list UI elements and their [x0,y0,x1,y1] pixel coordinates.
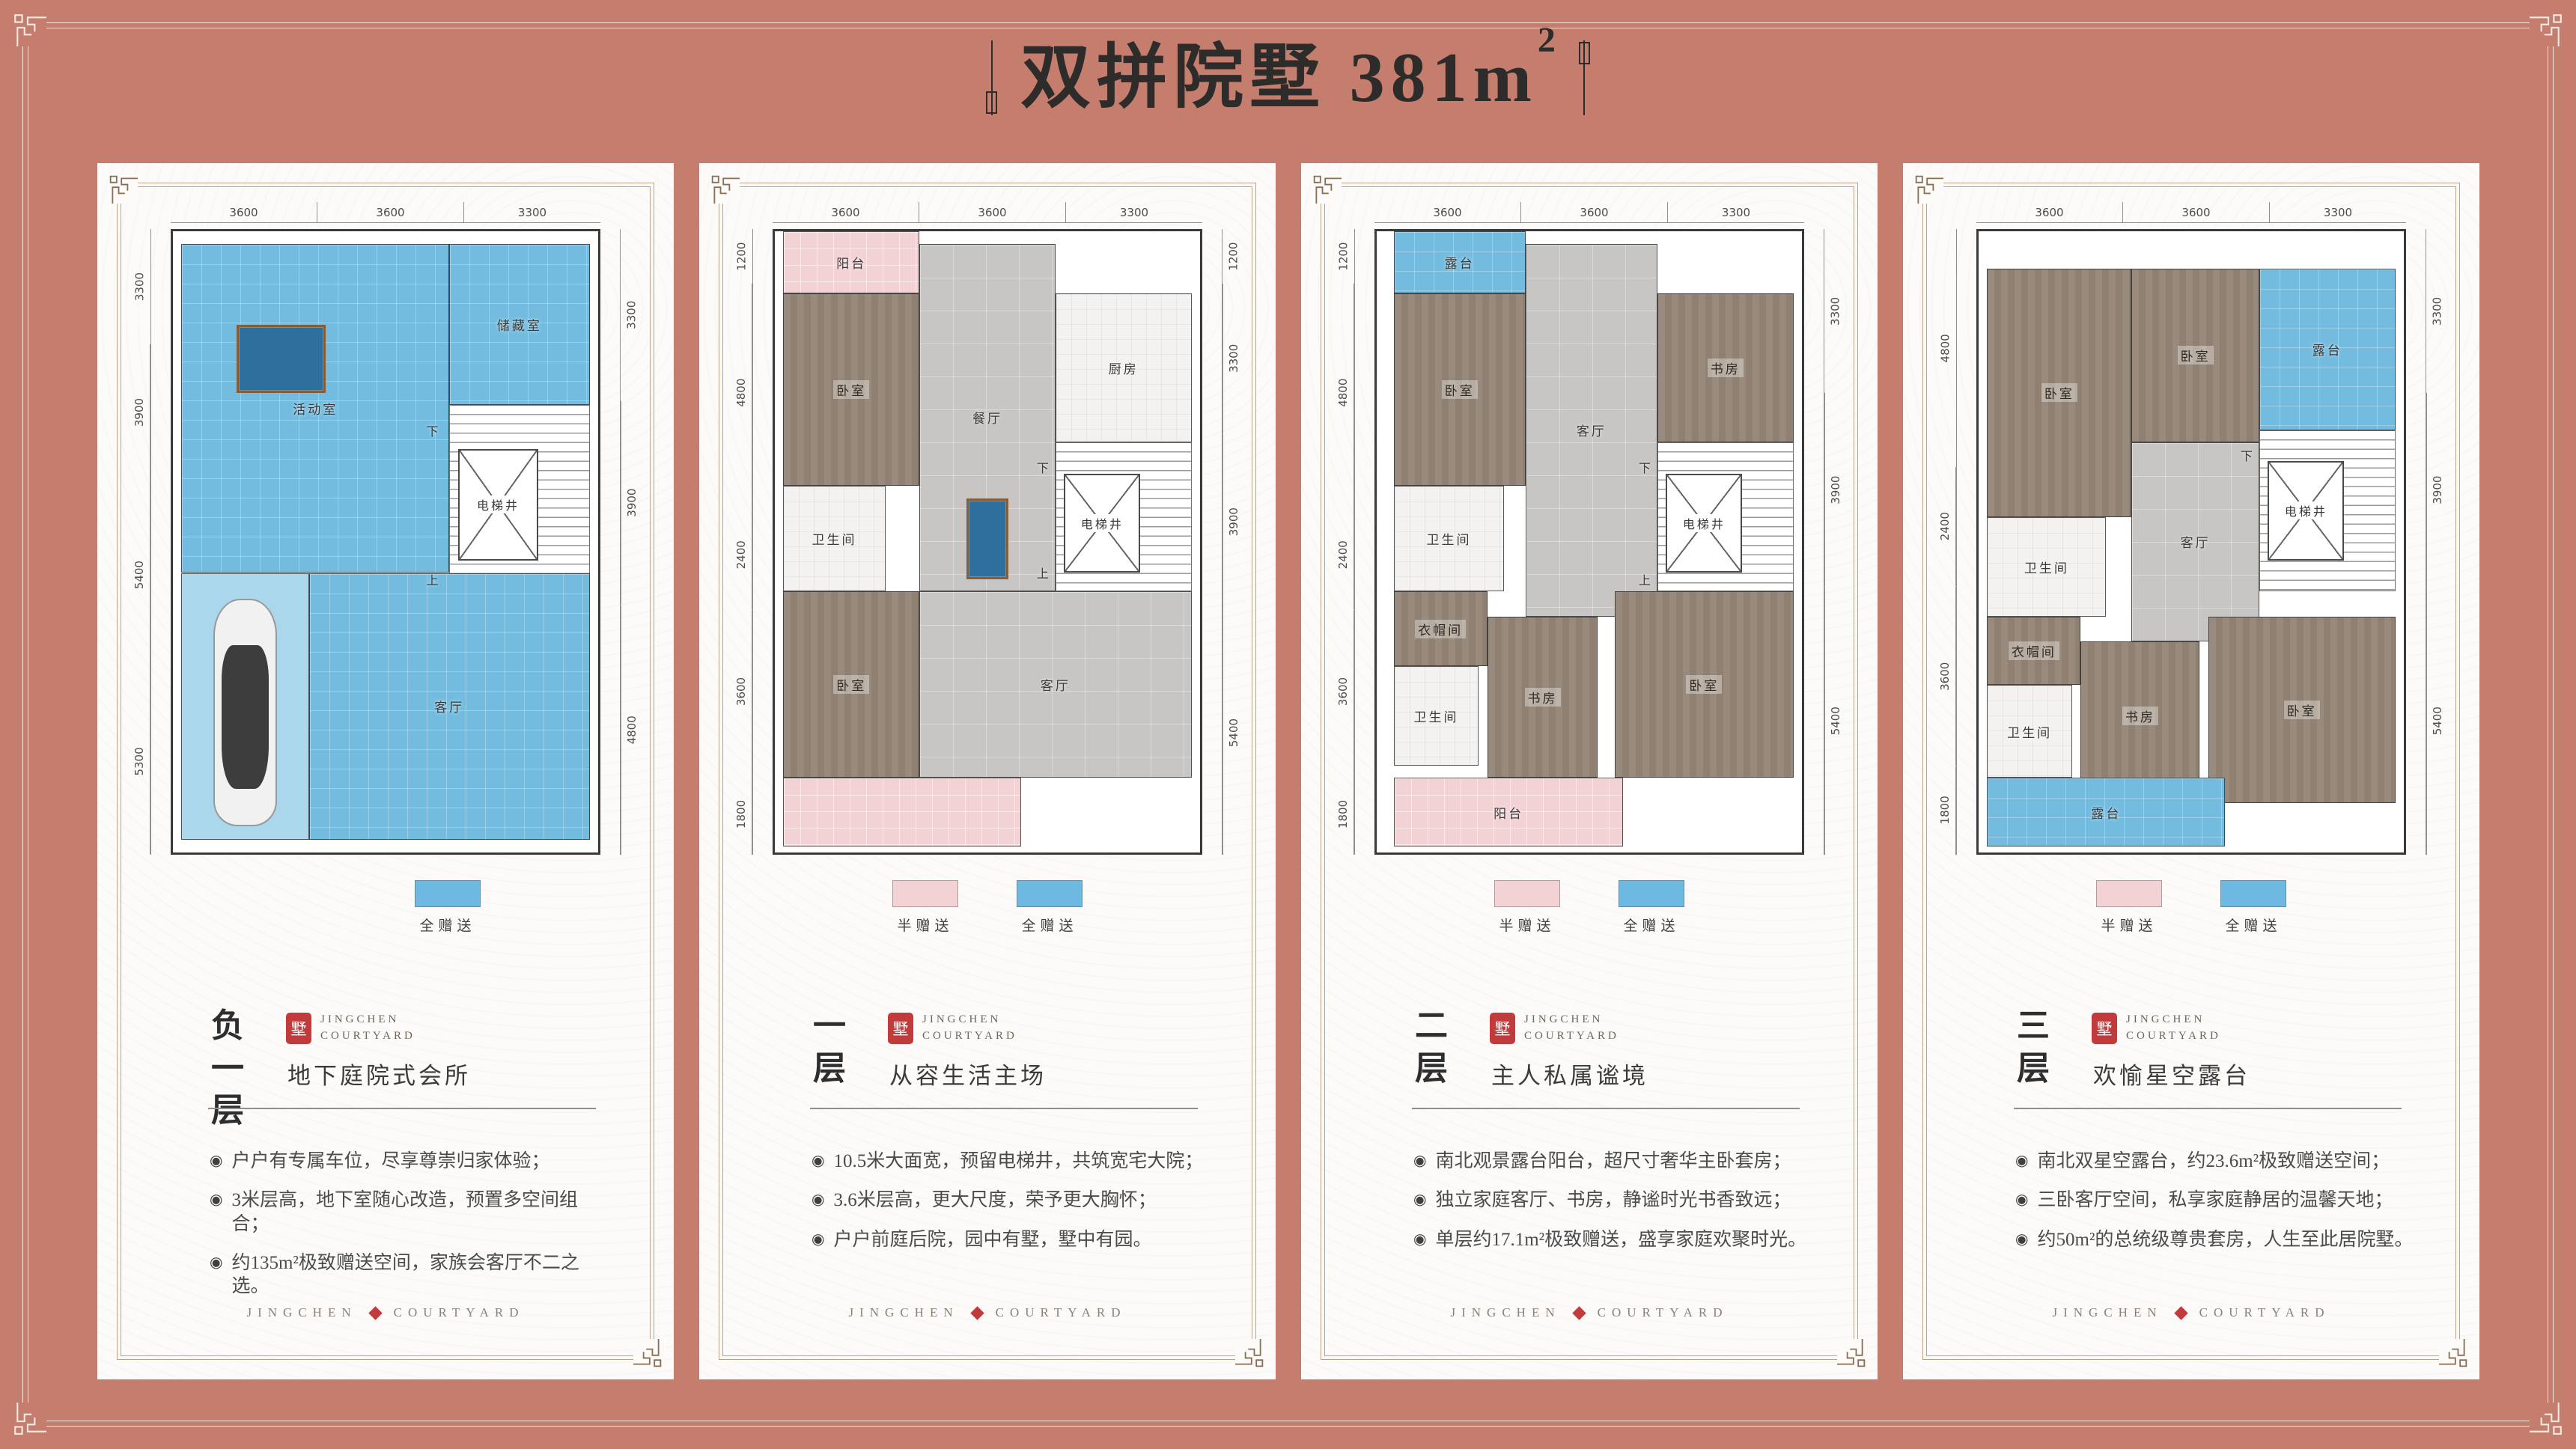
diamond-icon [368,1306,382,1320]
title-ornament-right [1578,40,1590,115]
room-white: 卫生间 [1394,666,1479,766]
panel-subtitle: 从容生活主场 [889,1057,1047,1090]
bullet-item: ◉3米层高，地下室随心改造，预置多空间组合； [210,1189,614,1236]
room-label: 衣帽间 [1415,620,1466,638]
room-pink: 阳台 [783,231,919,293]
brand-names: JINGCHEN COURTYARD [2126,1012,2221,1045]
dims-right: 1200330039005400 [1222,229,1244,855]
room-label: 上 [1639,570,1651,588]
panel-subtitle: 地下庭院式会所 [287,1057,471,1090]
plan-annotation: 下 [415,412,449,449]
floor-name-char: 层 [2017,1050,2050,1088]
room-elevator: 电梯井 [2268,461,2344,561]
legend-label: 全赠送 [413,915,482,935]
room-wood: 卧室 [1987,269,2131,517]
room-label: 活动室 [293,399,338,418]
dim-label: 3300 [129,229,150,344]
bullet-item: ◉三卧客厅空间，私享家庭静居的温馨天地； [2015,1189,2420,1212]
dim-label: 3600 [171,202,317,222]
room-white: 卫生间 [783,486,885,591]
brand-name-2: COURTYARD [2126,1028,2221,1045]
bullet-item: ◉单层约17.1m²极致赠送，盛享家庭欢聚时光。 [1413,1228,1818,1251]
room-elevator: 电梯井 [458,449,539,561]
diamond-icon [970,1306,984,1320]
room-label: 客厅 [1577,421,1607,439]
room-label: 卧室 [2041,383,2077,402]
dim-label: 5400 [129,481,150,669]
brand-seal-icon: 墅 [1490,1013,1515,1044]
plan-box: 露台卧室客厅书房电梯井卫生间衣帽间卫生间书房卧室阳台下上 [1374,229,1804,855]
legend-swatch-full [2220,880,2286,907]
room-gray: 客厅 [919,591,1192,778]
divider-rule [2014,1108,2402,1109]
car-icon [213,599,277,826]
dim-label: 3900 [621,401,642,605]
plan-box: 活动室储藏室电梯井客厅下上 [171,229,600,855]
poster: 双拼院墅 381m2 360036003300 3300390054005300… [0,0,2576,1449]
floor-name: 负一层 [211,1007,244,1130]
room-wood: 卧室 [2131,269,2259,442]
dim-label: 2400 [731,501,752,609]
dims-right: 330039004800 [620,229,642,855]
plan-annotation: 上 [415,561,449,598]
room-blue: 客厅 [309,573,590,841]
room-blue: 露台 [1394,231,1526,293]
plan-annotation: 下 [2229,436,2263,474]
room-label: 卫生间 [812,529,857,548]
room-label: 卧室 [1442,380,1478,399]
brand-name-2: COURTYARD [320,1028,415,1045]
dim-label: 3600 [1374,202,1520,222]
dim-label: 4800 [1934,229,1956,467]
dim-label: 4800 [1333,284,1354,501]
bullet-item: ◉南北双星空露台，约23.6m²极致赠送空间； [2015,1150,2420,1173]
dim-label: 1200 [1222,229,1244,284]
room-elevator: 电梯井 [1064,474,1140,573]
legend-swatch-half [2096,880,2162,907]
divider-rule [810,1108,1198,1109]
dim-label: 3300 [621,229,642,401]
panel-footer: JINGCHEN COURTYARD [97,1305,674,1320]
room-wood: 卧室 [2208,617,2396,803]
room-wood: 书房 [1488,617,1598,778]
dims-right: 330039005400 [1824,229,1846,855]
room-label: 卧室 [1686,675,1722,694]
dim-label: 3900 [129,344,150,481]
room-wood: 衣帽间 [1394,591,1488,666]
floor-name-char: 负 [211,1007,244,1046]
dim-label: 1800 [1934,766,1956,855]
fret-corner-icon [2530,1403,2564,1437]
car-roof [222,645,269,789]
dims-left: 12004800240036001800 [731,229,753,855]
dim-label: 3900 [1824,393,1846,587]
legend-label: 半赠送 [1493,915,1562,935]
dims-top: 360036003300 [171,202,600,223]
floor-title-block: 一层 墅 JINGCHEN COURTYARD 从容生活主场 [810,1007,1198,1131]
fret-corner-icon [710,174,740,204]
dim-label: 3900 [2426,393,2448,587]
divider-rule [1412,1108,1800,1109]
floor-title-block: 三层 墅 JINGCHEN COURTYARD 欢愉星空露台 [2014,1007,2402,1131]
floor-title-block: 负一层 墅 JINGCHEN COURTYARD 地下庭院式会所 [208,1007,596,1131]
dim-label: 3600 [2122,202,2269,222]
dim-label: 1800 [1333,773,1354,855]
floor-name: 二层 [1415,1007,1448,1087]
dim-label: 3300 [2269,202,2406,222]
plan-box: 阳台卧室餐厅厨房电梯井卫生间卧室客厅下上 [773,229,1202,855]
room-label: 书房 [1708,359,1744,377]
dims-top: 360036003300 [1976,202,2406,223]
title-ornament-left [986,40,998,115]
floor-name: 三层 [2017,1007,2050,1087]
floor-title-block: 二层 墅 JINGCHEN COURTYARD 主人私属谧境 [1412,1007,1800,1131]
fret-corner-icon [1837,1339,1867,1369]
floor-plan: 360036003300 3300390054005300 3300390048… [127,202,644,859]
brand-logo: 墅 JINGCHEN COURTYARD [888,1012,1017,1045]
legend-item-half: 半赠送 [1493,880,1562,935]
plan-annotation: 下 [1627,449,1661,486]
footer-right: COURTYARD [394,1305,525,1320]
dim-label: 5400 [2426,587,2448,855]
brand-seal-icon: 墅 [2092,1013,2117,1044]
floor-name-char: 层 [813,1050,846,1088]
room-label: 下 [2241,446,2253,464]
dims-top: 360036003300 [773,202,1202,223]
diamond-icon [1572,1306,1586,1320]
plan-box: 卧室卧室露台客厅电梯井卫生间衣帽间卫生间书房卧室露台下 [1976,229,2406,855]
dim-label: 3300 [1065,202,1202,222]
dim-label: 3600 [731,610,752,773]
floor-name-char: 三 [2017,1007,2050,1046]
room-wood: 卧室 [783,293,919,486]
panel-subtitle: 主人私属谧境 [1491,1057,1648,1090]
dim-label: 4800 [621,605,642,855]
dim-label: 3600 [773,202,919,222]
dim-label: 1200 [1333,229,1354,284]
dim-label: 3300 [2426,229,2448,393]
dim-label: 5400 [1824,587,1846,855]
room-wood: 衣帽间 [1987,617,2080,685]
room-pink: 阳台 [1394,778,1624,846]
room-label: 电梯井 [2283,501,2330,519]
bullet-item: ◉南北观景露台阳台，超尺寸奢华主卧套房； [1413,1150,1818,1173]
floor-plan: 360036003300 4800240036001800 3300390054… [1933,202,2449,859]
room-white: 卫生间 [1987,517,2106,617]
bullet-list: ◉南北观景露台阳台，超尺寸奢华主卧套房；◉独立家庭客厅、书房，静谧时光书香致远；… [1413,1150,1818,1267]
legend-swatch-half [1494,880,1560,907]
floor-plan: 360036003300 12004800240036001800 120033… [729,202,1246,859]
room-label: 下 [1639,458,1651,476]
brand-seal-icon: 墅 [888,1013,913,1044]
room-label: 卫生间 [1427,529,1472,548]
room-pool [966,498,1009,579]
room-label: 露台 [2312,340,2342,359]
room-pink [783,778,1021,846]
footer-right: COURTYARD [2199,1305,2330,1320]
bullet-item: ◉10.5米大面宽，预留电梯井，共筑宽宅大院； [812,1150,1216,1173]
room-blue: 活动室 [181,244,449,573]
room-label: 客厅 [434,697,464,716]
fret-corner-icon [1235,1339,1265,1369]
legend-item-full: 全赠送 [413,880,482,935]
legend-swatch-full [415,880,481,907]
room-label: 阳台 [1493,803,1523,822]
room-car [198,591,292,834]
fret-corner-icon [12,1403,46,1437]
room-pool [237,325,326,393]
footer-right: COURTYARD [1598,1305,1729,1320]
legend: 半赠送全赠送 [1301,880,1878,935]
legend: 全赠送 [97,880,674,935]
panel-card: 360036003300 4800240036001800 3300390054… [1903,163,2479,1379]
floor-name-char: 一 [211,1050,244,1088]
brand-name-1: JINGCHEN [320,1012,415,1028]
brand-names: JINGCHEN COURTYARD [922,1012,1017,1045]
room-label: 露台 [2091,803,2121,822]
brand-name-1: JINGCHEN [922,1012,1017,1028]
room-label: 客厅 [1041,675,1071,694]
footer-left: JINGCHEN [1451,1305,1561,1320]
room-wood: 卧室 [1394,293,1526,486]
brand-logo: 墅 JINGCHEN COURTYARD [2092,1012,2221,1045]
room-label: 卧室 [833,675,869,694]
floor-name-char: 二 [1415,1007,1448,1046]
dims-left: 12004800240036001800 [1333,229,1355,855]
plan-annotation: 下 [1026,449,1059,486]
room-label: 卫生间 [2007,722,2052,741]
room-label: 电梯井 [1079,514,1126,532]
brand-seal-icon: 墅 [286,1013,311,1044]
room-label: 书房 [2122,707,2158,725]
brand-logo: 墅 JINGCHEN COURTYARD [286,1012,415,1045]
room-white: 厨房 [1056,293,1192,442]
brand-name-1: JINGCHEN [1524,1012,1619,1028]
bullet-item: ◉约50m²的总统级尊贵套房，人生至此居院墅。 [2015,1228,2420,1251]
room-label: 电梯井 [475,495,522,513]
dim-label: 2400 [1934,467,1956,586]
room-label: 卧室 [2284,701,2320,719]
room-label: 电梯井 [1681,514,1728,532]
poster-title: 双拼院墅 381m2 [1020,43,1556,113]
dim-label: 3600 [317,202,463,222]
plan-annotation: 上 [1026,555,1059,592]
poster-title-wrap: 双拼院墅 381m2 [0,33,2576,123]
dim-label: 3600 [1934,587,1956,766]
dim-label: 3300 [1222,284,1244,433]
room-white: 卫生间 [1394,486,1505,591]
bullet-list: ◉10.5米大面宽，预留电梯井，共筑宽宅大院；◉3.6米层高，更大尺度，荣予更大… [812,1150,1216,1267]
legend-item-full: 全赠送 [2219,880,2288,935]
diamond-icon [2174,1306,2187,1320]
fret-corner-icon [108,174,138,204]
panel-footer: JINGCHEN COURTYARD [1301,1305,1878,1320]
plan-annotation: 上 [1627,561,1661,598]
bullet-item: ◉户户前庭后院，园中有墅，墅中有园。 [812,1228,1216,1251]
legend-item-full: 全赠送 [1617,880,1686,935]
panel-card: 360036003300 12004800240036001800 120033… [699,163,1276,1379]
room-label: 卧室 [833,380,869,399]
brand-name-1: JINGCHEN [2126,1012,2221,1028]
legend-item-half: 半赠送 [2095,880,2164,935]
dims-left: 4800240036001800 [1934,229,1957,855]
legend-item-half: 半赠送 [891,880,960,935]
fret-corner-icon [2439,1339,2469,1369]
legend-label: 半赠送 [891,915,960,935]
room-label: 露台 [1445,253,1475,272]
legend-item-full: 全赠送 [1015,880,1084,935]
panel-footer: JINGCHEN COURTYARD [1903,1305,2479,1320]
room-label: 下 [1037,458,1049,476]
dim-label: 3600 [1333,610,1354,773]
floor-name-char: 层 [211,1092,244,1130]
brand-names: JINGCHEN COURTYARD [320,1012,415,1045]
dim-label: 3300 [1824,229,1846,393]
bullet-list: ◉户户有专属车位，尽享尊崇归家体验；◉3米层高，地下室随心改造，预置多空间组合；… [210,1150,614,1314]
panel-card: 360036003300 12004800240036001800 330039… [1301,163,1878,1379]
legend-swatch-half [892,880,958,907]
legend-label: 全赠送 [1015,915,1084,935]
footer-left: JINGCHEN [849,1305,959,1320]
dim-label: 4800 [731,284,752,501]
dims-top: 360036003300 [1374,202,1804,223]
room-label: 储藏室 [497,315,542,334]
bullet-item: ◉独立家庭客厅、书房，静谧时光书香致远； [1413,1189,1818,1212]
legend: 半赠送全赠送 [699,880,1276,935]
room-label: 阳台 [836,253,866,272]
room-label: 卫生间 [1414,707,1459,725]
floor-name: 一层 [813,1007,846,1087]
room-label: 上 [426,570,438,588]
footer-right: COURTYARD [996,1305,1127,1320]
panels-row: 360036003300 3300390054005300 3300390048… [97,163,2479,1379]
room-blue: 露台 [1987,778,2225,846]
room-label: 卫生间 [2024,558,2069,576]
room-elevator: 电梯井 [1666,474,1742,573]
room-label: 厨房 [1109,359,1139,377]
brand-logo: 墅 JINGCHEN COURTYARD [1490,1012,1619,1045]
dim-label: 1200 [731,229,752,284]
brand-name-2: COURTYARD [1524,1028,1619,1045]
room-label: 上 [1037,564,1049,582]
floor-name-char: 一 [813,1007,846,1046]
dim-label: 5300 [129,669,150,855]
room-blue: 露台 [2259,269,2396,430]
room-label: 书房 [1525,688,1561,707]
dim-label: 3600 [1976,202,2122,222]
room-wood: 卧室 [1615,591,1794,778]
dims-right: 330039005400 [2426,229,2448,855]
room-wood: 书房 [2080,641,2199,790]
room-label: 下 [426,421,438,439]
fret-corner-icon [1312,174,1342,204]
legend: 半赠送全赠送 [1903,880,2479,935]
room-label: 餐厅 [972,408,1002,427]
panel-subtitle: 欢愉星空露台 [2093,1057,2250,1090]
bullet-list: ◉南北双星空露台，约23.6m²极致赠送空间；◉三卧客厅空间，私享家庭静居的温馨… [2015,1150,2420,1267]
dim-label: 3600 [1520,202,1667,222]
room-wood: 卧室 [783,591,919,778]
footer-left: JINGCHEN [247,1305,357,1320]
room-label: 客厅 [2181,532,2211,551]
legend-label: 半赠送 [2095,915,2164,935]
dim-label: 3900 [1222,433,1244,610]
legend-label: 全赠送 [2219,915,2288,935]
bullet-item: ◉户户有专属车位，尽享尊崇归家体验； [210,1150,614,1173]
brand-names: JINGCHEN COURTYARD [1524,1012,1619,1045]
dim-label: 1800 [731,773,752,855]
room-blue: 储藏室 [449,244,589,406]
bullet-item: ◉3.6米层高，更大尺度，荣予更大胸怀； [812,1189,1216,1212]
floor-name-char: 层 [1415,1050,1448,1088]
footer-left: JINGCHEN [2053,1305,2163,1320]
dims-left: 3300390054005300 [129,229,151,855]
bullet-item: ◉约135m²极致赠送空间，家族会客厅不二之选。 [210,1251,614,1299]
brand-name-2: COURTYARD [922,1028,1017,1045]
legend-label: 全赠送 [1617,915,1686,935]
dim-label: 2400 [1333,501,1354,609]
floor-plan: 360036003300 12004800240036001800 330039… [1331,202,1848,859]
room-label: 卧室 [2178,346,2214,364]
legend-swatch-full [1619,880,1684,907]
fret-corner-icon [633,1339,663,1369]
room-label: 衣帽间 [2009,641,2059,660]
dim-label: 3300 [1667,202,1804,222]
room-wood: 书房 [1657,293,1794,442]
dim-label: 5400 [1222,610,1244,855]
dim-label: 3300 [463,202,600,222]
panel-footer: JINGCHEN COURTYARD [699,1305,1276,1320]
panel-card: 360036003300 3300390054005300 3300390048… [97,163,674,1379]
room-white: 卫生间 [1987,685,2072,778]
divider-rule [208,1108,596,1109]
legend-swatch-full [1017,880,1083,907]
fret-corner-icon [1913,174,1943,204]
dim-label: 3600 [919,202,1065,222]
